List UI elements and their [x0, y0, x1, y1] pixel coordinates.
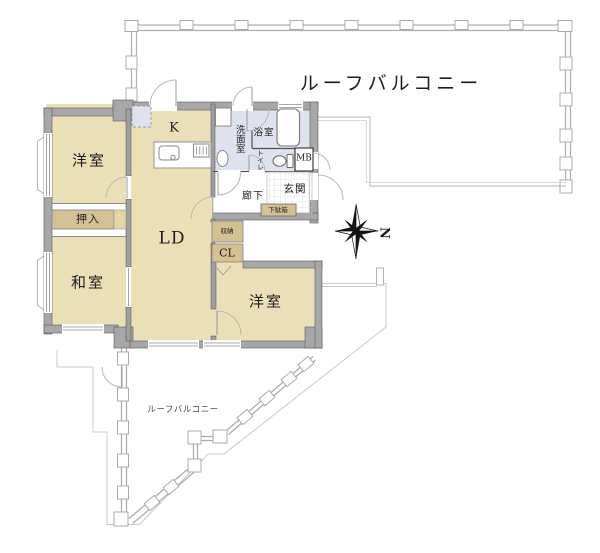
entrance-door	[318, 175, 343, 200]
floorplan-canvas: ルーフバルコニー 洋室 押入 和室 K LD 洗面室 浴室 トイレ MB 玄関 …	[0, 0, 600, 553]
toilet-icon	[273, 156, 286, 166]
toilet-tank-icon	[287, 155, 293, 168]
room-label-oshiire: 押入	[76, 214, 100, 225]
room-label-kitchen: K	[169, 122, 179, 135]
washer-icon	[216, 108, 232, 126]
compass-north-label: N	[378, 227, 391, 239]
bottom-balcony-posts	[114, 352, 314, 526]
sink-icon	[159, 146, 179, 160]
room-label-closet: CL	[219, 248, 235, 259]
balcony-pillar-stub	[377, 268, 384, 285]
top-balcony-label: ルーフバルコニー	[300, 75, 482, 94]
room-label-western1: 洋室	[72, 154, 106, 169]
room-label-bathroom: 浴室	[253, 128, 274, 138]
basin-icon	[217, 151, 228, 167]
room-label-toilet: トイレ	[257, 150, 264, 171]
room-label-entrance: 玄関	[284, 184, 307, 195]
room-label-japanese: 和室	[71, 276, 105, 291]
room-label-shoe-cabinet: 下駄箱	[268, 207, 288, 214]
bottom-balcony-label: ルーフバルコニー	[147, 406, 218, 415]
balcony-door	[102, 367, 122, 387]
room-label-washroom: 洗面室	[234, 125, 244, 154]
bathtub-icon	[277, 109, 300, 146]
room-label-hallway: 廊下	[242, 192, 264, 202]
room-label-living-dining: LD	[159, 231, 186, 248]
top-balcony-inner-boundary	[318, 117, 566, 186]
refrigerator-space	[132, 106, 151, 127]
room-label-meter-box: MB	[296, 155, 312, 164]
room-label-storage: 収納	[221, 228, 234, 235]
room-label-western2: 洋室	[249, 295, 283, 310]
faucet-icon	[171, 155, 175, 159]
compass-icon	[335, 204, 378, 259]
